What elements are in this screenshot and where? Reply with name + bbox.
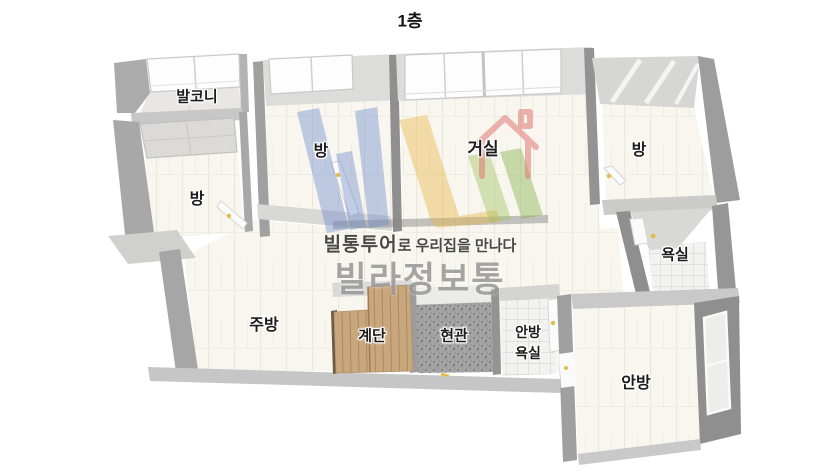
room-label-balcony: 발코니 bbox=[176, 86, 217, 107]
room-label-room-right: 방 bbox=[632, 136, 647, 160]
room-label-master-bathroom-line2: 욕실 bbox=[515, 343, 541, 364]
watermark-brand: 빌라정보통 bbox=[334, 252, 505, 303]
room-label-kitchen: 주방 bbox=[249, 311, 278, 335]
room-label-room-left: 방 bbox=[190, 185, 205, 209]
floor-title: 1층 bbox=[397, 7, 422, 32]
room-label-living: 거실 bbox=[467, 135, 498, 160]
room-label-room-center: 방 bbox=[314, 137, 329, 161]
floorplan-canvas: 1층 발코니 방 방 거실 방 욕실 주방 계단 현관 안방 욕실 안방 빌통투… bbox=[0, 0, 840, 472]
room-label-stairs: 계단 bbox=[358, 325, 386, 346]
room-label-master-bedroom: 안방 bbox=[621, 369, 650, 393]
room-label-bathroom: 욕실 bbox=[661, 244, 689, 265]
room-label-entrance: 현관 bbox=[440, 325, 468, 346]
room-label-master-bathroom: 안방 욕실 bbox=[515, 322, 541, 364]
room-label-master-bathroom-line1: 안방 bbox=[515, 322, 541, 343]
